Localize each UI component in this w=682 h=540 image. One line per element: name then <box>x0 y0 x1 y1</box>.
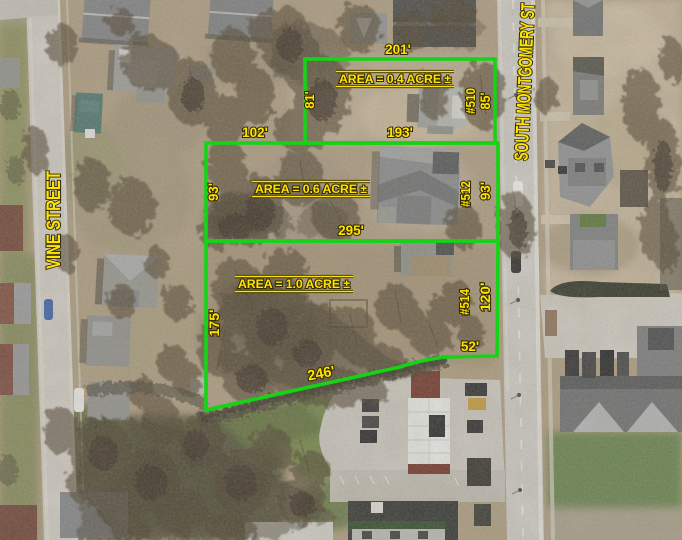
svg-text:#512: #512 <box>459 181 473 207</box>
svg-text:VINE STREET: VINE STREET <box>44 171 65 269</box>
svg-text:295': 295' <box>338 223 364 238</box>
svg-text:120': 120' <box>478 283 493 312</box>
svg-text:102': 102' <box>242 125 268 140</box>
svg-text:193': 193' <box>387 125 413 140</box>
svg-text:AREA = 0.4 ACRE ±: AREA = 0.4 ACRE ± <box>339 72 451 86</box>
svg-text:81': 81' <box>302 91 317 109</box>
svg-text:201': 201' <box>385 42 411 57</box>
svg-text:85': 85' <box>478 93 493 110</box>
svg-text:93': 93' <box>478 182 493 200</box>
svg-text:175': 175' <box>207 310 222 337</box>
svg-text:93': 93' <box>206 183 221 201</box>
svg-text:#510: #510 <box>464 88 478 114</box>
svg-text:AREA = 0.6 ACRE ±: AREA = 0.6 ACRE ± <box>255 182 367 196</box>
svg-text:#514: #514 <box>458 289 472 315</box>
svg-text:52': 52' <box>461 339 479 354</box>
svg-text:AREA = 1.0 ACRE ±: AREA = 1.0 ACRE ± <box>238 277 350 291</box>
